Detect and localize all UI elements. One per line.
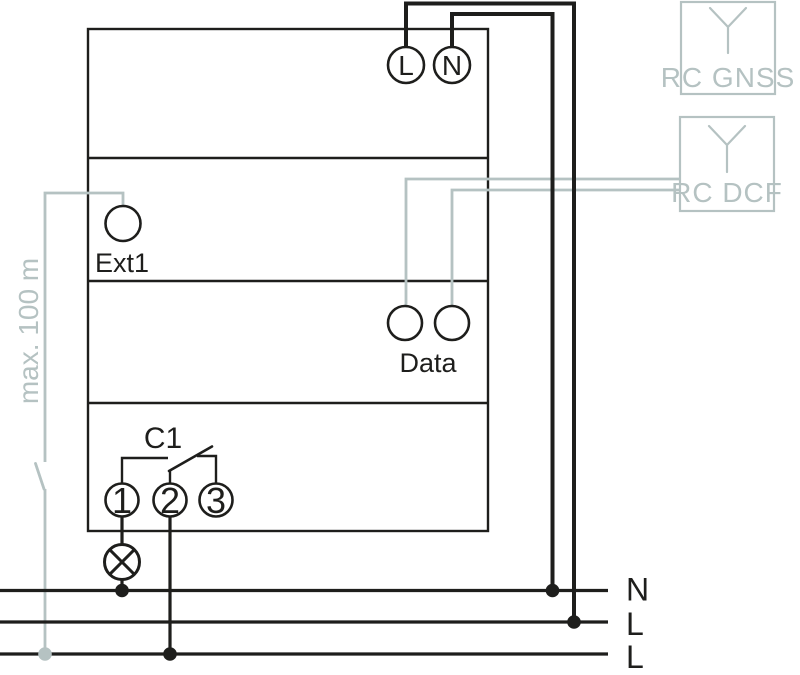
relay-contact: C1: [122, 422, 216, 484]
terminal-ext1: [106, 206, 141, 241]
terminal-2-label: 2: [160, 480, 180, 521]
terminal-1-label: 1: [112, 480, 132, 521]
terminal-data-1: [388, 306, 422, 340]
data-wire-1: [406, 179, 680, 306]
data-label: Data: [399, 348, 457, 378]
supply-wires: [406, 4, 574, 623]
relay-channel-label: C1: [144, 422, 182, 455]
bus-label-l1: L: [626, 606, 644, 642]
bus-label-n: N: [626, 572, 649, 608]
antenna-module-dcf: RC DCF: [671, 117, 783, 211]
antenna-icon: [709, 126, 745, 172]
terminal-data-2: [435, 306, 469, 340]
junction-l1: [567, 615, 581, 629]
terminal-n-label: N: [442, 50, 462, 81]
max-length-label: max. 100 m: [13, 258, 44, 404]
external-switch-blade: [36, 464, 45, 490]
antenna-gnss-label: RC GNSS: [661, 62, 796, 93]
ext1-label: Ext1: [95, 248, 149, 278]
terminal-3-label: 3: [206, 480, 226, 521]
n-supply-wire: [452, 14, 553, 591]
antenna-dcf-label: RC DCF: [671, 177, 783, 208]
junction-lamp-n: [115, 584, 129, 598]
device: [88, 29, 488, 531]
junction-n: [546, 584, 560, 598]
antenna-module-gnss: RC GNSS: [661, 2, 796, 94]
data-wire-2: [452, 190, 680, 306]
diagram-canvas: RC GNSS RC DCF max. 100 m C1: [0, 0, 800, 675]
l-supply-wire: [406, 4, 574, 623]
junction-terminal2-l2: [163, 647, 177, 661]
terminal-l-label: L: [398, 50, 414, 81]
load-circuit: [105, 517, 140, 591]
wiring-diagram: RC GNSS RC DCF max. 100 m C1: [0, 0, 800, 675]
junction-ext-l2: [38, 647, 52, 661]
data-wires: [406, 179, 680, 306]
bus-label-l2: L: [626, 639, 644, 675]
antenna-icon: [710, 8, 746, 53]
